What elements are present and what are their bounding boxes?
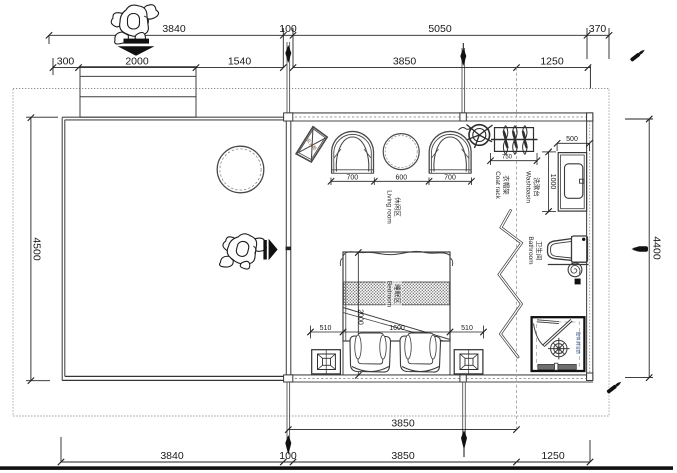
svg-text:510: 510: [461, 325, 473, 332]
svg-text:600: 600: [395, 175, 407, 182]
svg-text:4500: 4500: [31, 237, 43, 261]
svg-text:整体淋浴房: 整体淋浴房: [575, 332, 582, 355]
svg-text:700: 700: [444, 175, 456, 182]
svg-text:5050: 5050: [428, 23, 452, 35]
svg-text:300: 300: [57, 56, 75, 68]
svg-text:3840: 3840: [160, 450, 184, 462]
svg-text:1600: 1600: [389, 325, 405, 332]
svg-text:750: 750: [502, 155, 513, 161]
svg-text:100: 100: [279, 450, 297, 462]
svg-text:1540: 1540: [228, 56, 252, 68]
svg-text:100: 100: [279, 23, 297, 35]
svg-text:3850: 3850: [393, 56, 417, 68]
svg-text:370: 370: [589, 23, 607, 35]
svg-text:3840: 3840: [162, 23, 186, 35]
svg-text:4400: 4400: [651, 236, 663, 260]
svg-text:1250: 1250: [540, 56, 564, 68]
svg-text:1250: 1250: [541, 450, 565, 462]
svg-text:1000: 1000: [549, 174, 556, 190]
svg-text:700: 700: [346, 175, 358, 182]
svg-text:2000: 2000: [356, 309, 363, 325]
svg-text:500: 500: [566, 136, 578, 143]
svg-text:510: 510: [320, 325, 332, 332]
svg-text:2000: 2000: [125, 56, 149, 68]
svg-text:3850: 3850: [391, 450, 415, 462]
svg-text:3850: 3850: [391, 418, 415, 430]
